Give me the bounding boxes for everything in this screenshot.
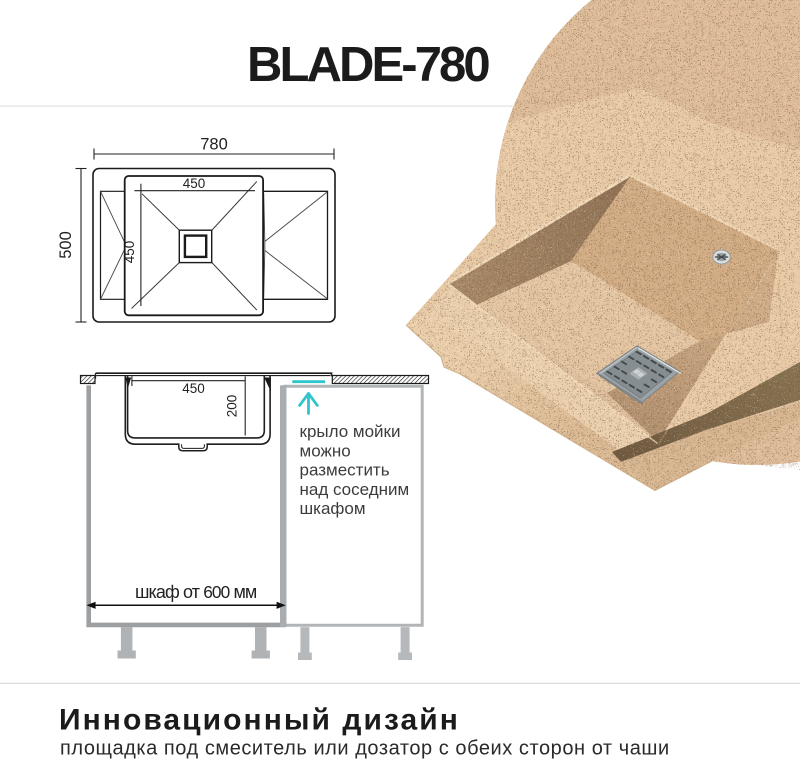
svg-text:разместить: разместить [300, 461, 390, 480]
svg-text:можно: можно [300, 441, 351, 460]
svg-text:шкафом: шкафом [300, 499, 366, 518]
svg-text:шкаф от 600 мм: шкаф от 600 мм [135, 582, 257, 602]
svg-text:500: 500 [57, 231, 75, 259]
svg-text:крыло мойки: крыло мойки [300, 422, 401, 441]
svg-text:200: 200 [225, 395, 240, 418]
svg-text:450: 450 [183, 176, 206, 191]
svg-text:площадка под смеситель или доз: площадка под смеситель или дозатор с обе… [60, 738, 670, 760]
svg-text:450: 450 [182, 381, 205, 396]
svg-text:BLADE-780: BLADE-780 [247, 38, 489, 92]
svg-text:Инновационный дизайн: Инновационный дизайн [59, 704, 460, 737]
svg-text:450: 450 [122, 241, 137, 264]
svg-text:над соседним: над соседним [300, 480, 410, 499]
svg-text:780: 780 [200, 136, 228, 154]
